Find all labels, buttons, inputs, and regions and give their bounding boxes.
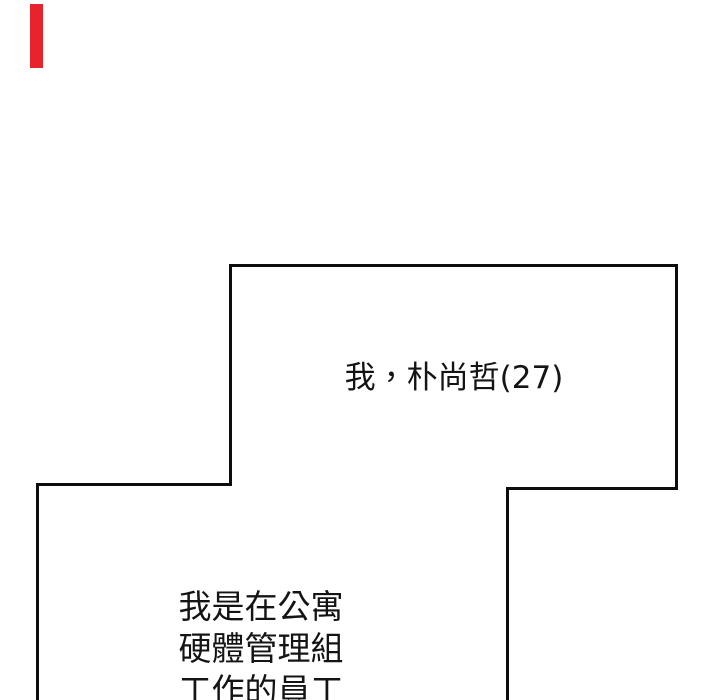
panel-border-left-step-h bbox=[36, 483, 232, 486]
bottom-panel-caption: 我是在公寓 硬體管理組 工作的員工 bbox=[111, 586, 411, 700]
top-panel-caption: 我，朴尚哲(27) bbox=[230, 356, 678, 400]
comic-page: 我，朴尚哲(27) 我是在公寓 硬體管理組 工作的員工 bbox=[0, 0, 720, 700]
panel-border-right-step-h bbox=[506, 487, 678, 490]
panel-border-right-step-v bbox=[506, 487, 509, 700]
bottom-caption-line-1: 我是在公寓 bbox=[111, 586, 411, 628]
bottom-caption-line-3: 工作的員工 bbox=[111, 670, 411, 700]
bottom-caption-line-2: 硬體管理組 bbox=[111, 628, 411, 670]
red-accent-mark bbox=[30, 4, 43, 68]
panel-border-top bbox=[229, 264, 678, 267]
panel-border-left bbox=[36, 483, 39, 700]
